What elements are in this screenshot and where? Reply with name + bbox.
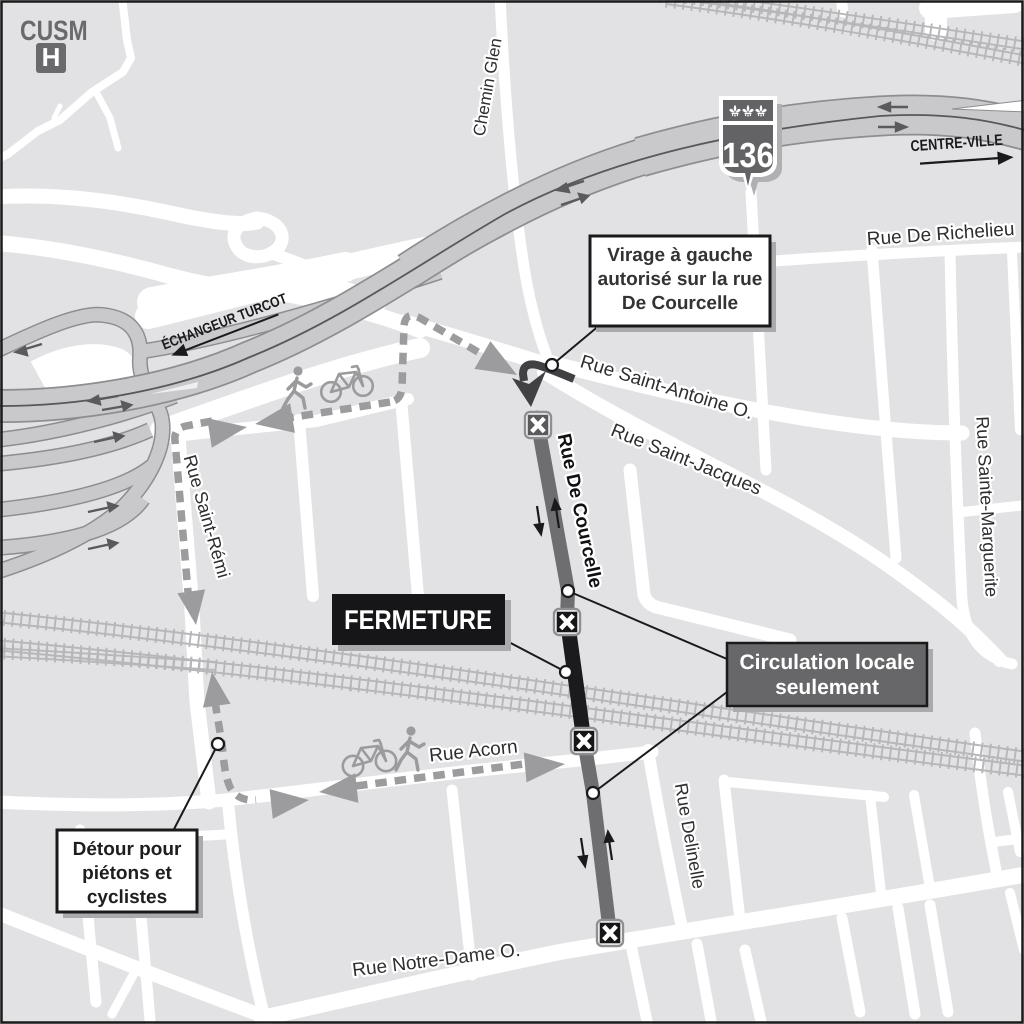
svg-text:H: H xyxy=(42,42,61,72)
svg-text:136: 136 xyxy=(722,136,773,175)
svg-text:FERMETURE: FERMETURE xyxy=(344,605,492,635)
svg-text:autorisé sur la rue: autorisé sur la rue xyxy=(598,269,763,290)
svg-text:Virage à gauche: Virage à gauche xyxy=(607,245,752,266)
svg-text:seulement: seulement xyxy=(775,676,879,699)
svg-text:piétons et: piétons et xyxy=(82,863,172,884)
svg-text:cyclistes: cyclistes xyxy=(87,887,167,908)
svg-text:De Courcelle: De Courcelle xyxy=(622,293,738,314)
svg-text:Détour pour: Détour pour xyxy=(73,839,182,860)
svg-text:Circulation locale: Circulation locale xyxy=(739,651,914,674)
